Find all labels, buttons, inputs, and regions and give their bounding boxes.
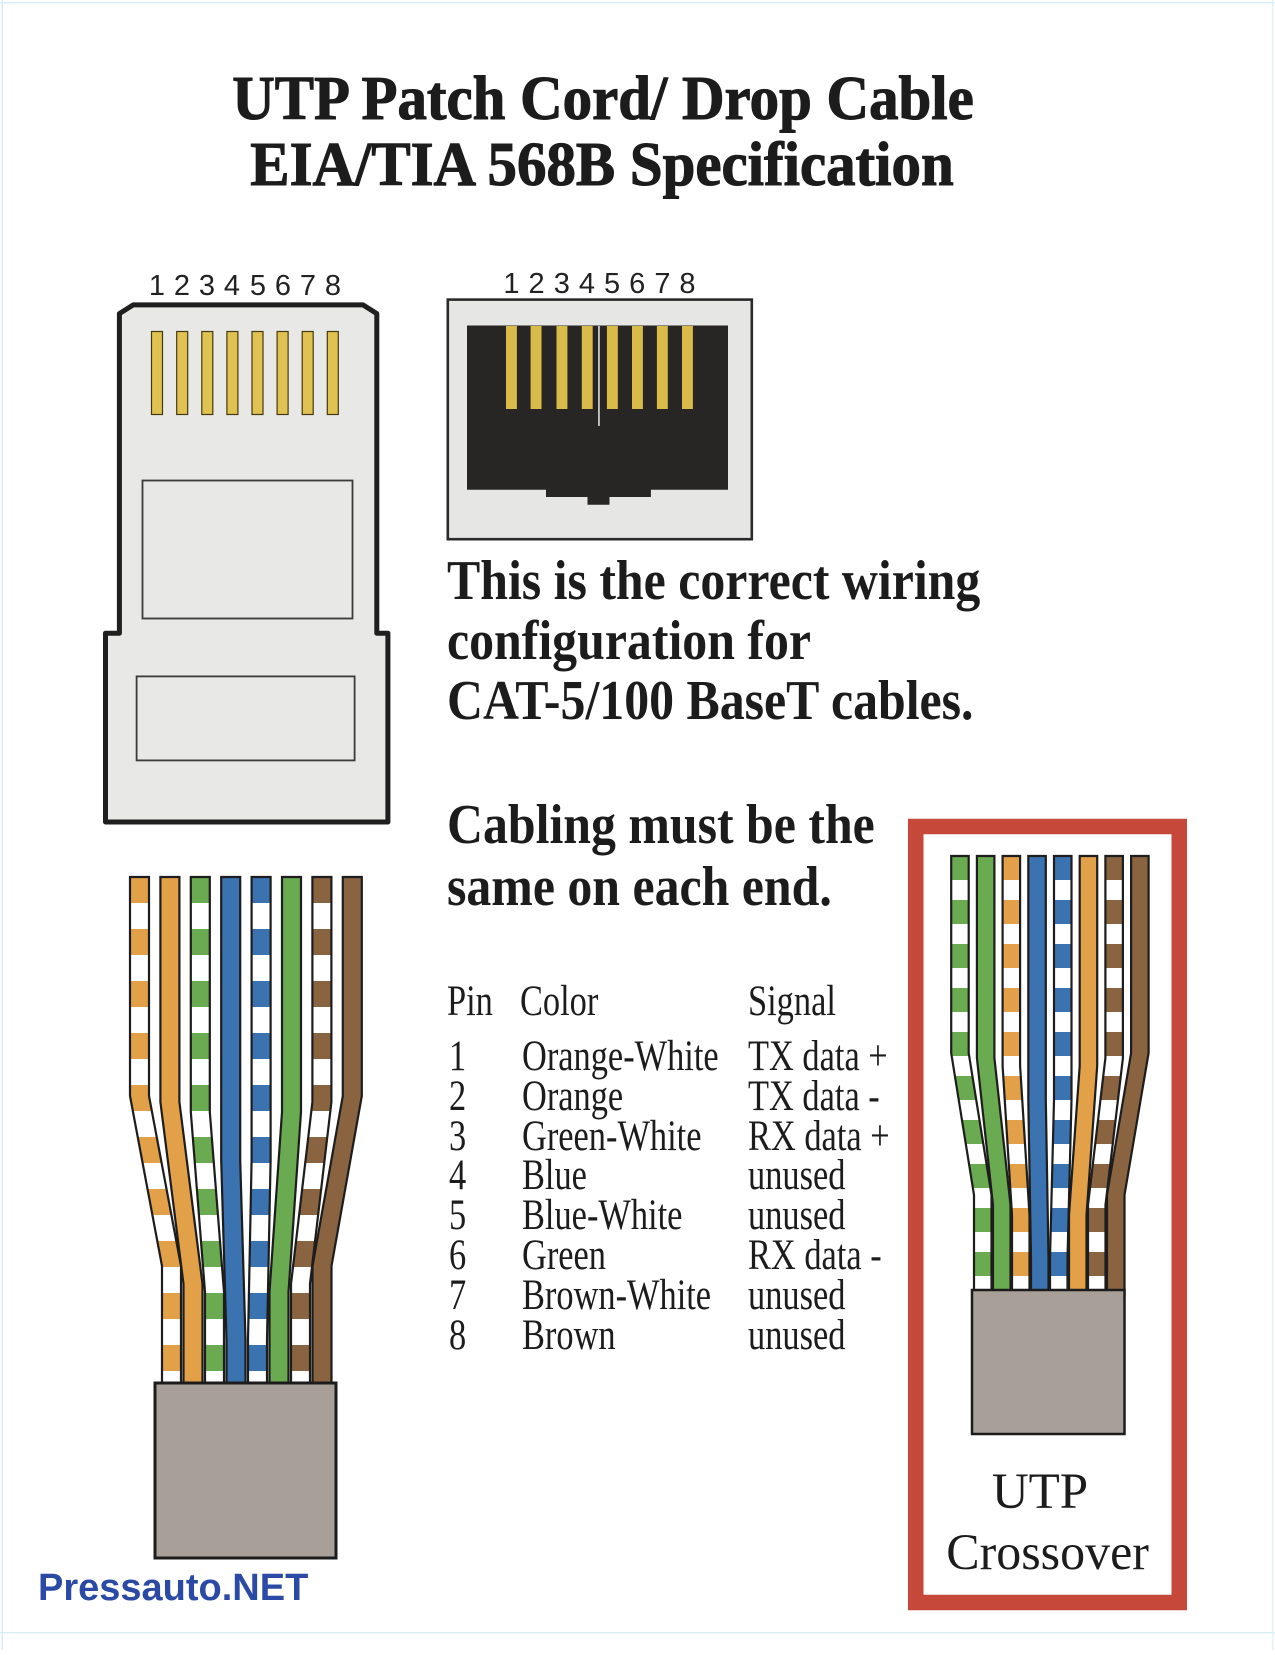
- svg-text:3: 3: [554, 268, 570, 300]
- svg-text:8: 8: [325, 270, 341, 302]
- svg-text:5: 5: [250, 270, 266, 302]
- svg-text:Pin: Pin: [447, 977, 493, 1024]
- svg-text:Crossover: Crossover: [946, 1524, 1149, 1581]
- svg-text:configuration for: configuration for: [447, 610, 811, 671]
- svg-text:6: 6: [275, 270, 291, 302]
- svg-text:unused: unused: [748, 1311, 845, 1358]
- svg-text:3: 3: [199, 270, 215, 302]
- svg-text:7: 7: [300, 270, 316, 302]
- svg-text:8: 8: [679, 268, 695, 300]
- svg-text:Cabling must be the: Cabling must be the: [447, 794, 875, 855]
- svg-text:1: 1: [149, 270, 165, 302]
- svg-text:Pressauto.NET: Pressauto.NET: [38, 1567, 308, 1609]
- svg-text:4: 4: [579, 268, 595, 300]
- svg-text:UTP: UTP: [992, 1464, 1088, 1520]
- svg-text:5: 5: [604, 268, 620, 300]
- svg-text:Color: Color: [520, 977, 598, 1024]
- svg-text:CAT-5/100 BaseT cables.: CAT-5/100 BaseT cables.: [447, 670, 974, 731]
- svg-text:Signal: Signal: [748, 977, 836, 1024]
- svg-text:2: 2: [529, 268, 545, 300]
- svg-text:4: 4: [224, 270, 240, 302]
- svg-text:8: 8: [449, 1311, 466, 1358]
- svg-text:7: 7: [654, 268, 670, 300]
- svg-text:same on each end.: same on each end.: [447, 856, 832, 917]
- svg-text:6: 6: [629, 268, 645, 300]
- svg-text:1: 1: [503, 268, 519, 300]
- svg-text:This is the correct wiring: This is the correct wiring: [447, 550, 980, 611]
- svg-text:EIA/TIA 568B Specification: EIA/TIA 568B Specification: [250, 131, 953, 200]
- svg-text:UTP Patch Cord/ Drop Cable: UTP Patch Cord/ Drop Cable: [232, 65, 974, 134]
- svg-text:Brown: Brown: [522, 1311, 616, 1358]
- svg-text:2: 2: [174, 270, 190, 302]
